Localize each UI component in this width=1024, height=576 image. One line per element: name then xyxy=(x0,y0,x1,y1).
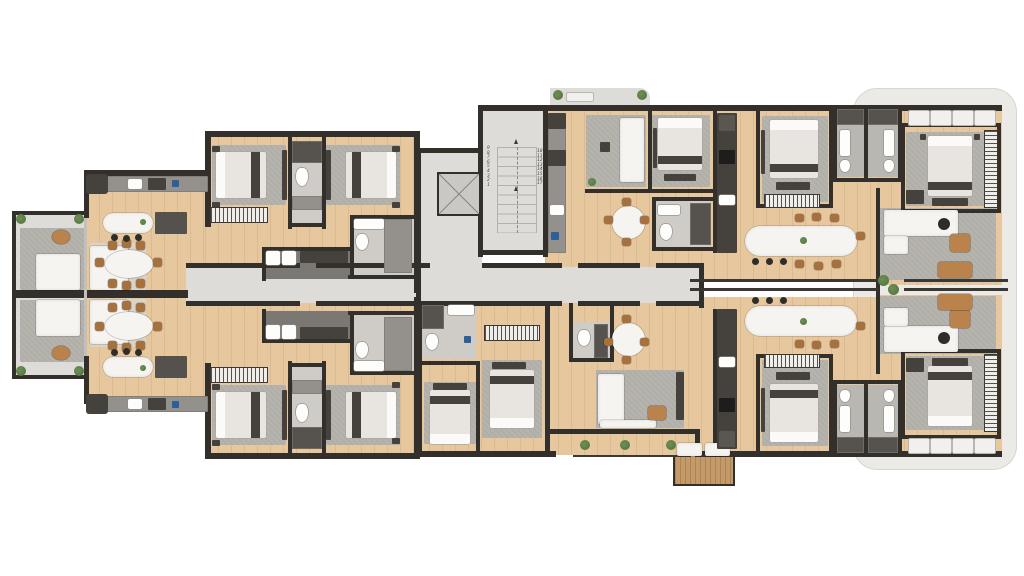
wall-segment xyxy=(205,131,420,137)
plant-icon xyxy=(74,366,84,376)
wall-segment xyxy=(901,349,905,439)
wall-segment xyxy=(476,361,480,453)
dining-chair xyxy=(604,216,613,224)
bathtub xyxy=(884,130,894,156)
party-wall xyxy=(904,288,1008,291)
bed xyxy=(928,366,972,426)
wall-segment xyxy=(482,263,562,268)
plant-icon xyxy=(878,275,889,286)
wall-segment xyxy=(545,429,550,457)
dining-chair xyxy=(136,279,145,288)
washer xyxy=(266,251,280,265)
wall-segment xyxy=(901,123,905,213)
wall-segment xyxy=(756,111,760,208)
sofa xyxy=(598,374,624,424)
wall-segment xyxy=(350,371,414,375)
wall-segment xyxy=(652,247,715,251)
party-wall xyxy=(690,279,878,282)
shower xyxy=(292,141,322,163)
wall-segment xyxy=(585,189,715,193)
tv-panel xyxy=(326,150,331,200)
dining-chair xyxy=(622,315,631,323)
refrigerator xyxy=(719,431,735,447)
toilet xyxy=(296,404,308,422)
bar-stool xyxy=(111,349,118,356)
planter-box xyxy=(908,438,930,454)
party-wall xyxy=(12,290,188,298)
shower xyxy=(868,437,898,453)
tv-panel xyxy=(653,128,657,168)
wall-segment xyxy=(288,223,326,227)
bathtub xyxy=(840,130,850,156)
dining-chair xyxy=(640,216,649,224)
shower xyxy=(868,109,898,125)
planter-box xyxy=(974,438,996,454)
dresser xyxy=(906,190,924,204)
dining-chair xyxy=(640,338,649,346)
wardrobe-hangers xyxy=(210,367,268,383)
dining-chair xyxy=(856,232,865,240)
wall-segment xyxy=(652,197,656,251)
wardrobe-hangers xyxy=(764,194,820,208)
sun-lounger xyxy=(677,443,702,456)
wall-segment xyxy=(416,148,421,303)
dining-chair xyxy=(622,356,631,364)
sofa-chaise xyxy=(884,308,908,326)
bed-bench xyxy=(776,182,810,190)
wall-segment xyxy=(186,301,300,306)
tv-panel xyxy=(282,390,287,440)
nightstand xyxy=(212,384,220,390)
sofa xyxy=(36,300,80,336)
plant-icon xyxy=(888,284,899,295)
bar-stool xyxy=(766,297,773,304)
plant-icon xyxy=(16,214,26,224)
wall-segment xyxy=(545,429,695,434)
bar-stool xyxy=(780,258,787,265)
counter-item xyxy=(172,401,179,408)
dining-chair xyxy=(795,340,804,348)
sofa xyxy=(620,118,644,182)
ottoman xyxy=(52,346,70,360)
wardrobe-hangers xyxy=(984,130,998,208)
wall-segment xyxy=(288,363,326,367)
wardrobe-hangers xyxy=(484,325,540,341)
wall-segment xyxy=(545,303,550,429)
bed xyxy=(770,384,818,442)
dining-chair xyxy=(108,303,117,312)
cooktop xyxy=(719,398,735,412)
bed-bench xyxy=(664,174,696,181)
wall-segment xyxy=(833,380,902,384)
plant-icon xyxy=(16,366,26,376)
wall-segment xyxy=(656,263,703,268)
bed xyxy=(490,370,534,428)
toilet xyxy=(884,160,894,172)
dining-chair xyxy=(856,322,865,330)
shower xyxy=(422,305,444,329)
bathtub xyxy=(384,317,412,371)
tv-panel xyxy=(326,390,331,440)
dining-chair xyxy=(622,198,631,206)
tv-panel xyxy=(761,388,765,432)
bed-bench xyxy=(932,198,968,206)
coffee-table xyxy=(600,142,610,152)
plant-icon xyxy=(588,178,596,186)
planter-box xyxy=(566,92,594,102)
wall-segment xyxy=(578,301,640,306)
plant-icon xyxy=(637,90,647,100)
vanity xyxy=(292,196,322,210)
planter-box xyxy=(930,110,952,126)
dining-chair xyxy=(830,340,839,348)
dining-chair xyxy=(108,279,117,288)
kitchen-counter xyxy=(155,212,187,234)
toilet xyxy=(660,224,672,240)
dining-table xyxy=(105,250,153,278)
nightstand xyxy=(392,202,400,208)
vanity xyxy=(448,305,474,315)
party-wall xyxy=(904,279,1008,282)
nightstand xyxy=(974,134,980,140)
bed-bench xyxy=(492,362,526,369)
bed xyxy=(658,118,702,170)
wall-segment xyxy=(876,188,880,282)
laundry-counter xyxy=(300,327,348,339)
laundry-counter xyxy=(300,251,348,263)
dining-chair xyxy=(795,214,804,222)
bed xyxy=(928,136,972,196)
party-wall xyxy=(690,288,878,291)
kitchen-counter xyxy=(155,356,187,378)
vanity xyxy=(354,361,384,371)
nightstand xyxy=(392,438,400,444)
bed xyxy=(216,392,266,438)
bar-stool xyxy=(766,258,773,265)
bar-stool xyxy=(135,349,142,356)
planter-box xyxy=(908,110,930,126)
shower xyxy=(690,203,711,245)
dining-chair xyxy=(814,262,823,270)
tv-panel xyxy=(676,372,684,420)
stair-number: 1 xyxy=(487,183,490,188)
wardrobe-hangers xyxy=(210,207,268,223)
credenza xyxy=(600,420,656,428)
sink xyxy=(128,399,142,409)
dining-chair xyxy=(153,258,162,267)
toilet xyxy=(296,168,308,186)
plant-icon xyxy=(620,440,630,450)
armchair xyxy=(950,234,970,252)
dining-chair xyxy=(136,241,145,250)
cooktop xyxy=(148,178,166,190)
toilet xyxy=(426,334,438,350)
floor-plan: 9 8 7 6 5 4 3 2 1 10 11 12 13 14 15 16 1… xyxy=(0,0,1024,576)
bar-stool xyxy=(752,297,759,304)
plant-icon xyxy=(580,440,590,450)
vanity xyxy=(292,380,322,394)
sink xyxy=(550,205,564,215)
wardrobe-hangers xyxy=(764,354,820,368)
bar-stool xyxy=(123,235,130,242)
washer xyxy=(266,325,280,339)
wall-segment xyxy=(833,178,902,182)
counter-item xyxy=(172,180,179,187)
bar-stool xyxy=(752,258,759,265)
wall-segment xyxy=(420,361,480,365)
wall-segment xyxy=(316,263,430,268)
bed xyxy=(346,392,396,438)
vanity xyxy=(354,219,384,229)
bar-stool xyxy=(135,234,142,241)
coffee-table xyxy=(938,218,950,230)
kettle xyxy=(800,237,807,244)
shower xyxy=(292,427,322,449)
dining-chair xyxy=(95,322,104,331)
bar-stool xyxy=(123,348,130,355)
wall-segment xyxy=(262,339,350,343)
dryer xyxy=(282,325,296,339)
wall-segment xyxy=(652,197,715,201)
wall-segment xyxy=(756,354,760,451)
nightstand xyxy=(392,146,400,152)
wall-segment xyxy=(569,303,573,362)
dryer xyxy=(282,251,296,265)
toilet xyxy=(884,390,894,402)
bed xyxy=(430,390,470,444)
wall-segment xyxy=(205,453,420,459)
kitchen-counter xyxy=(717,309,737,449)
toilet xyxy=(578,330,590,346)
shower xyxy=(837,109,864,125)
dining-chair xyxy=(604,338,613,346)
nightstand xyxy=(212,146,220,152)
plant-icon xyxy=(74,214,84,224)
refrigerator xyxy=(719,115,735,131)
dining-chair xyxy=(136,303,145,312)
window-band xyxy=(84,218,87,356)
bed xyxy=(346,152,396,198)
wall-segment xyxy=(416,148,482,153)
toilet xyxy=(356,342,368,358)
wall-segment xyxy=(478,105,550,111)
dining-chair xyxy=(830,214,839,222)
planter-box xyxy=(974,110,996,126)
wall-segment xyxy=(578,263,640,268)
wall-segment xyxy=(876,280,880,374)
sink xyxy=(719,357,735,367)
tv-panel xyxy=(761,130,765,174)
dining-chair xyxy=(108,241,117,250)
sun-lounger xyxy=(938,294,972,310)
toilet xyxy=(840,160,850,172)
armchair xyxy=(648,406,666,420)
dining-chair xyxy=(832,260,841,268)
bathtub xyxy=(840,406,850,432)
sink xyxy=(128,179,142,189)
counter-item xyxy=(464,336,471,343)
toilet xyxy=(356,234,368,250)
bed xyxy=(770,120,818,178)
stair-number: 17 xyxy=(537,181,543,186)
armchair xyxy=(950,310,970,328)
shower xyxy=(837,437,864,453)
wall-segment xyxy=(416,451,556,457)
cooktop xyxy=(148,398,166,410)
entry-terrace-floor xyxy=(550,88,650,106)
dining-chair xyxy=(95,258,104,267)
sofa-chaise xyxy=(884,236,908,254)
refrigerator xyxy=(86,174,108,194)
dining-chair xyxy=(122,281,131,290)
coffee-table xyxy=(938,332,950,344)
sink xyxy=(719,195,735,205)
refrigerator xyxy=(548,113,566,129)
wall-segment xyxy=(656,301,703,306)
bathtub xyxy=(884,406,894,432)
vanity xyxy=(658,205,680,215)
nightstand xyxy=(392,382,400,388)
counter-item xyxy=(551,232,559,240)
wall-segment xyxy=(569,358,614,362)
tv-panel xyxy=(282,150,287,200)
wall-segment xyxy=(648,111,652,191)
direction-arrow-icon xyxy=(514,139,518,144)
planter-box xyxy=(930,438,952,454)
dresser xyxy=(906,358,924,372)
sun-lounger xyxy=(938,262,972,278)
kettle xyxy=(140,365,146,371)
plant-icon xyxy=(553,90,563,100)
bed-bench xyxy=(932,358,968,366)
bathtub xyxy=(384,219,412,273)
wall-segment xyxy=(348,275,414,279)
railing xyxy=(573,455,691,457)
dining-table xyxy=(105,312,153,340)
ottoman xyxy=(52,230,70,244)
dining-chair xyxy=(153,322,162,331)
dining-chair xyxy=(622,238,631,246)
dining-chair xyxy=(812,341,821,349)
bed xyxy=(216,152,266,198)
planter-box xyxy=(952,438,974,454)
wall-segment xyxy=(478,250,548,255)
kitchen-counter xyxy=(717,113,737,253)
refrigerator xyxy=(86,394,108,414)
bed-bench xyxy=(433,383,467,390)
stair-numbers-down: 9 8 7 6 5 4 3 2 1 xyxy=(487,147,495,231)
sofa xyxy=(36,254,80,290)
oven xyxy=(548,150,566,166)
dining-chair xyxy=(122,301,131,310)
nightstand xyxy=(920,134,926,140)
bed-bench xyxy=(776,372,810,380)
cooktop xyxy=(719,150,735,164)
toilet xyxy=(840,390,850,402)
plant-icon xyxy=(666,440,676,450)
bar-stool xyxy=(111,234,118,241)
nightstand xyxy=(212,440,220,446)
direction-arrow-icon xyxy=(514,186,518,191)
dining-chair xyxy=(812,213,821,221)
planter-box xyxy=(952,110,974,126)
stair-numbers-up: 10 11 12 13 14 15 16 17 xyxy=(537,150,545,228)
elevator xyxy=(437,172,481,216)
dining-chair xyxy=(795,260,804,268)
wall-segment xyxy=(348,311,414,315)
bar-stool xyxy=(780,297,787,304)
kettle xyxy=(140,219,146,225)
kettle xyxy=(800,318,807,325)
wall-segment xyxy=(699,263,704,308)
wardrobe-hangers xyxy=(984,354,998,432)
